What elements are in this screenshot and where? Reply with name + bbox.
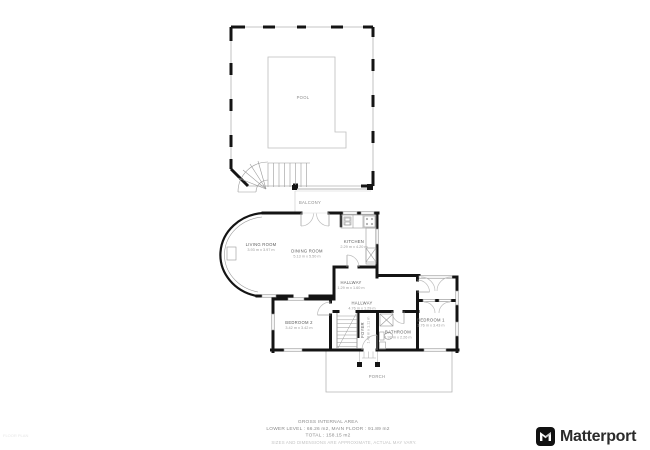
total-area-text: TOTAL : 158.15 m2 — [306, 433, 351, 439]
foyer-label: FOYER — [360, 322, 365, 338]
level-areas-text: LOWER LEVEL : 66.26 m2, MAIN FLOOR : 91.… — [266, 426, 389, 432]
watermark-text: FLOOR PLAN — [3, 433, 28, 438]
footer-area-summary: GROSS INTERNAL AREA LOWER LEVEL : 66.26 … — [266, 419, 416, 445]
hallway1-label: HALLWAY — [341, 280, 362, 285]
living-room-label: LIVING ROOM — [246, 242, 277, 247]
hallway2-label: HALLWAY — [352, 301, 373, 306]
gross-internal-area-title: GROSS INTERNAL AREA — [298, 419, 359, 425]
pool-label: POOL — [297, 95, 310, 100]
balcony-label: BALCONY — [299, 200, 321, 205]
floor-plan-page: POOL BALCONY — [0, 0, 650, 450]
dining-room-dims: 5.13 m x 5.50 m — [293, 255, 320, 259]
bedroom2-dims: 3.42 m x 3.42 m — [285, 326, 312, 330]
bedroom2-label: BEDROOM 2 — [285, 320, 313, 325]
living-room-dims: 3.93 m x 3.97 m — [247, 248, 274, 252]
disclaimer-text: SIZES AND DIMENSIONS ARE APPROXIMATE, AC… — [271, 440, 416, 445]
porch-label: PORCH — [369, 374, 386, 379]
room-labels: LIVING ROOM 3.93 m x 3.97 m DINING ROOM … — [246, 239, 445, 343]
floor-plan-drawing: POOL BALCONY — [0, 0, 650, 450]
pool-deck: POOL — [231, 27, 373, 192]
pool: POOL — [268, 57, 346, 148]
bedroom1-label: BEDROOM 1 — [417, 318, 445, 323]
bathroom-label: BATHROOM — [385, 330, 411, 335]
bathroom-dims: 1.92 m x 2.26 m — [384, 336, 411, 340]
bedroom1-dims: 3.76 m x 3.43 m — [417, 324, 444, 328]
hallway2-dims: 4.76 m x 1.29 m — [348, 307, 375, 311]
dining-room-label: DINING ROOM — [291, 249, 323, 254]
matterport-wordmark: Matterport — [560, 428, 636, 446]
matterport-logo: Matterport — [536, 427, 636, 446]
porch: PORCH — [326, 352, 452, 393]
balcony: BALCONY — [292, 184, 373, 213]
hallway1-dims: 1.29 m x 1.60 m — [337, 286, 364, 290]
kitchen-dims: 2.29 m x 4.20 m — [340, 245, 367, 249]
bay-window — [220, 213, 263, 296]
matterport-icon — [536, 427, 555, 446]
foyer-dims: 1.43 m x 1.11 m — [367, 317, 371, 344]
interior-stairs — [337, 312, 359, 350]
kitchen-label: KITCHEN — [344, 239, 364, 244]
